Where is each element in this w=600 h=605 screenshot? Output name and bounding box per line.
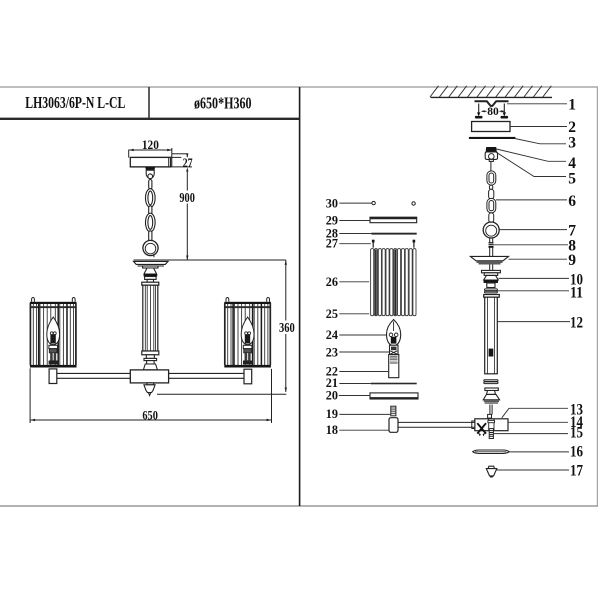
svg-text:20: 20: [326, 388, 338, 403]
svg-text:26: 26: [326, 274, 339, 289]
svg-text:3: 3: [568, 135, 576, 152]
svg-text:24: 24: [326, 327, 339, 342]
svg-text:25: 25: [326, 306, 339, 321]
svg-text:650: 650: [142, 407, 158, 422]
svg-text:18: 18: [326, 422, 339, 437]
svg-text:30: 30: [326, 195, 338, 210]
svg-text:2: 2: [568, 119, 576, 136]
svg-text:17: 17: [570, 462, 583, 479]
svg-text:LH3063/6P-N L-CL: LH3063/6P-N L-CL: [25, 93, 125, 112]
svg-text:11: 11: [570, 284, 583, 301]
svg-text:9: 9: [568, 252, 576, 269]
svg-text:4: 4: [568, 155, 576, 172]
svg-text:900: 900: [179, 190, 195, 205]
svg-text:80: 80: [487, 104, 499, 118]
svg-text:16: 16: [570, 443, 583, 460]
svg-text:15: 15: [570, 425, 583, 442]
svg-text:6: 6: [568, 193, 576, 210]
svg-text:19: 19: [326, 406, 339, 421]
svg-text:5: 5: [568, 170, 576, 187]
svg-text:27: 27: [326, 236, 339, 251]
svg-text:ø650*H360: ø650*H360: [194, 93, 252, 112]
svg-text:360: 360: [279, 320, 295, 335]
svg-text:23: 23: [326, 344, 339, 359]
svg-text:27: 27: [183, 156, 193, 170]
svg-text:12: 12: [570, 315, 583, 332]
svg-text:1: 1: [568, 97, 576, 114]
svg-text:120: 120: [142, 138, 159, 152]
